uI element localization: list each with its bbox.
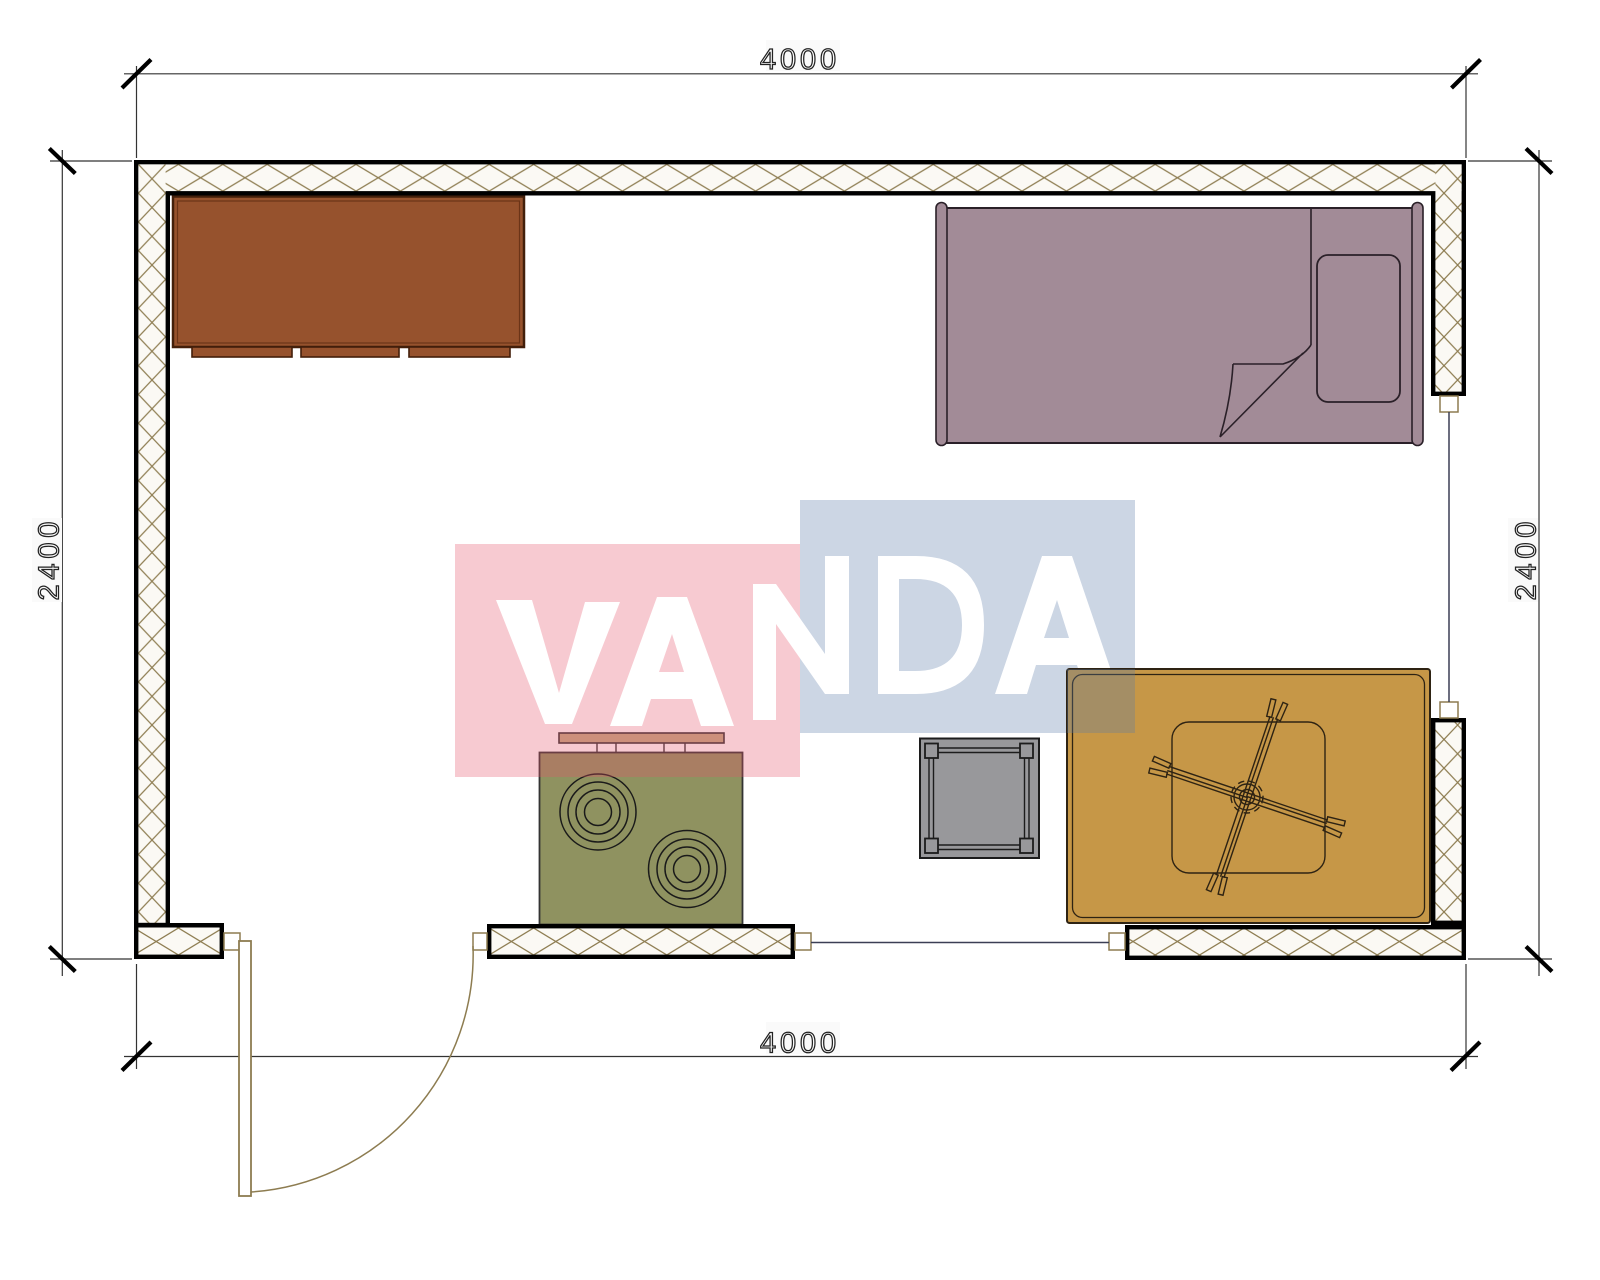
svg-text:2400: 2400 — [1511, 517, 1543, 601]
svg-text:4000: 4000 — [760, 1028, 840, 1060]
svg-text:2400: 2400 — [34, 517, 66, 601]
svg-text:4000: 4000 — [760, 44, 840, 76]
